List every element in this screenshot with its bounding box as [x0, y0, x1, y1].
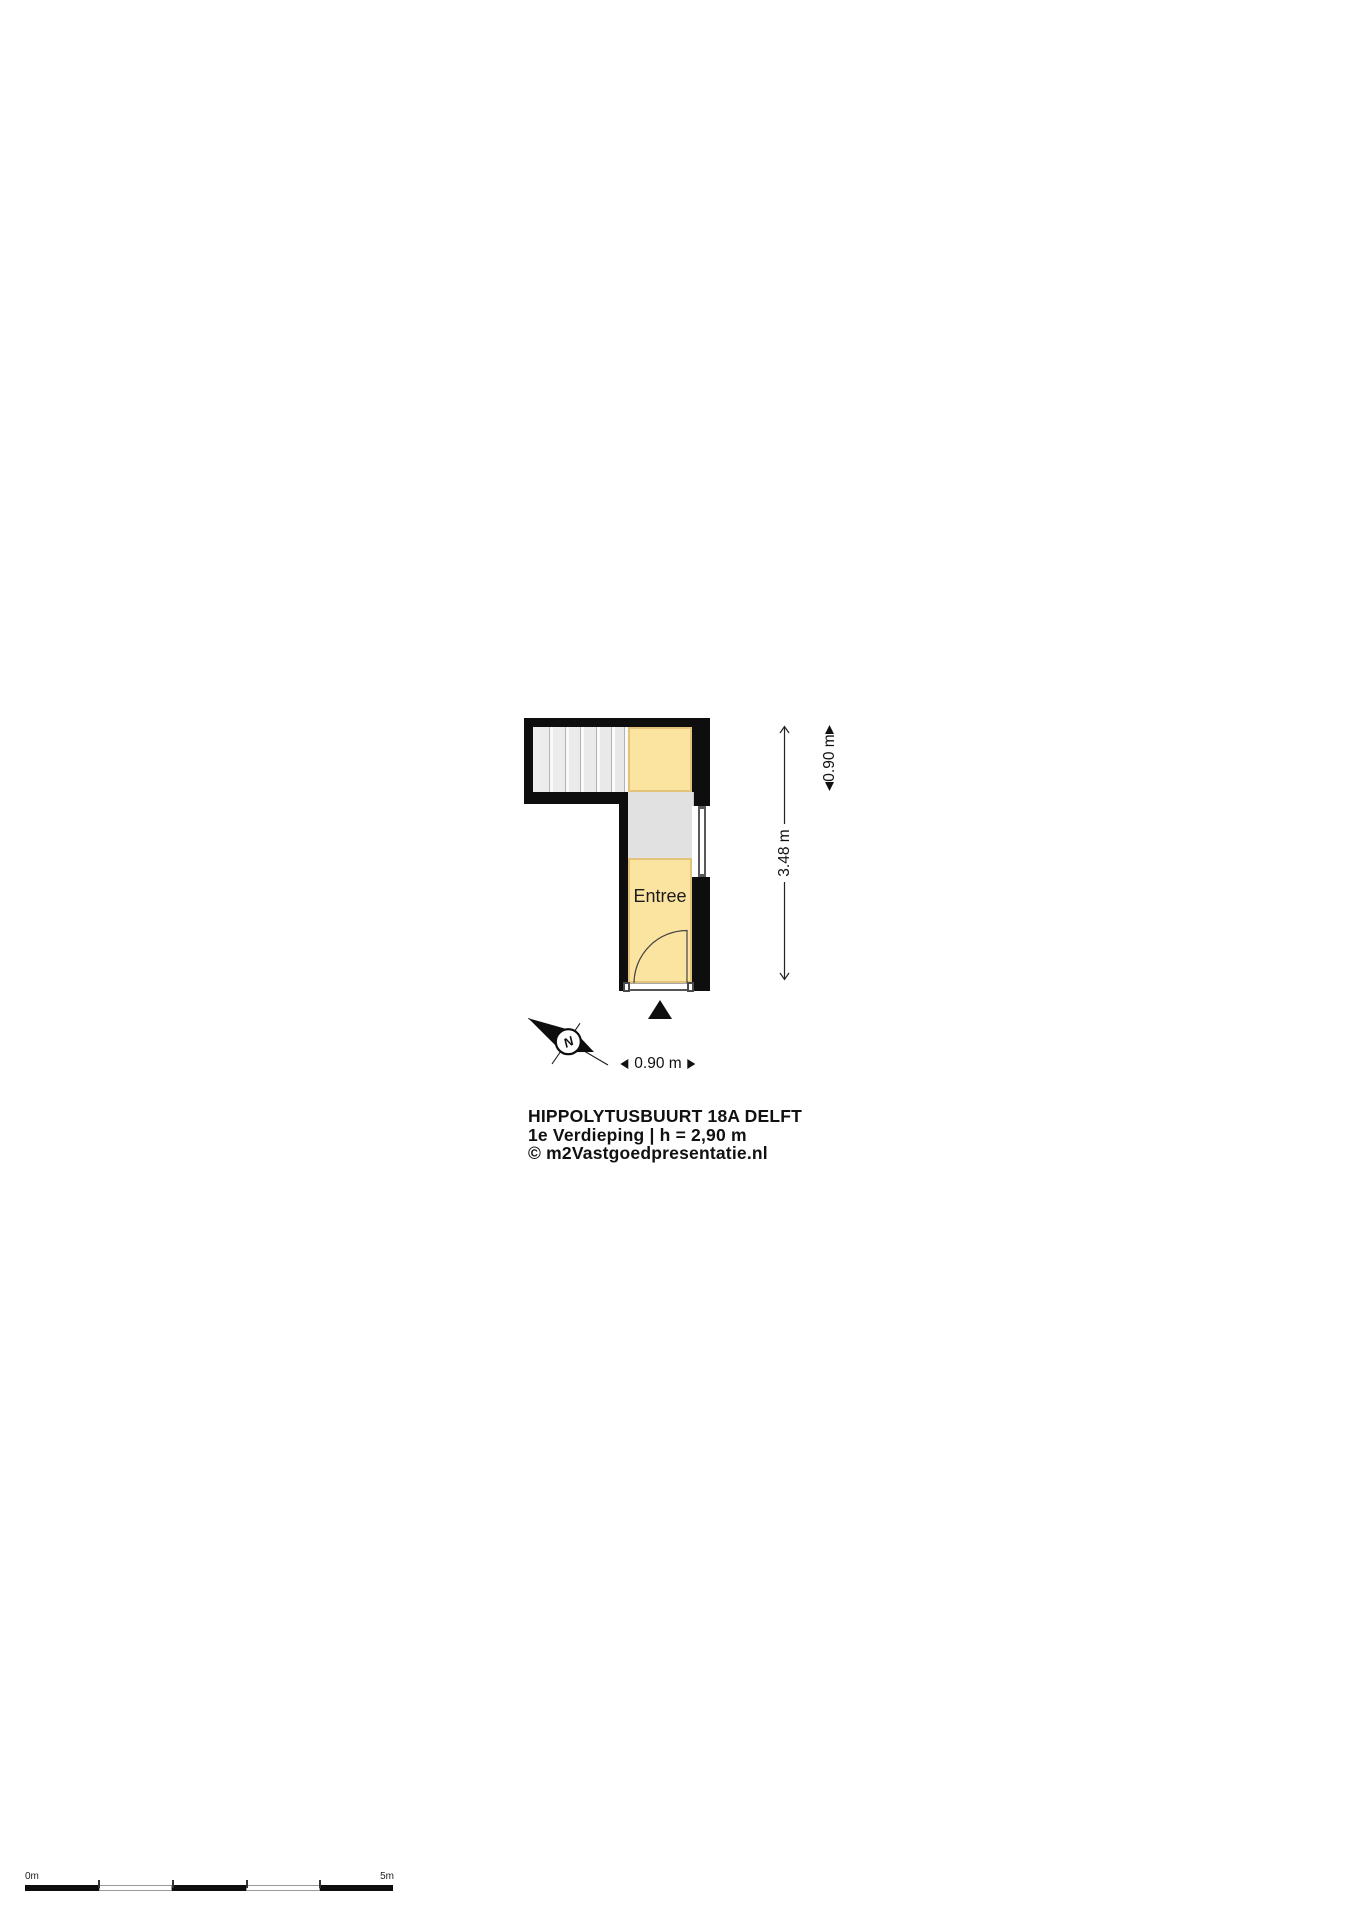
arrow-right-icon [688, 1059, 696, 1069]
stair-landing [628, 792, 694, 858]
sill-end-cap [687, 982, 694, 992]
entrance-arrow-icon [648, 1000, 672, 1019]
title-floor: 1e Verdieping | h = 2,90 m [528, 1126, 802, 1145]
scale-bar [25, 1885, 394, 1891]
scalebar-start-label: 0m [25, 1871, 39, 1882]
entry-door-sill [628, 983, 692, 991]
dimension-entry-width: 0.90 m [620, 1055, 695, 1073]
wall-right-upper [692, 718, 710, 806]
stair-tread-divider [549, 727, 553, 792]
wall-hall-left [619, 792, 628, 991]
stair-tread-divider [565, 727, 569, 792]
stair-tread-divider [611, 727, 615, 792]
title-block: HIPPOLYTUSBUURT 18A DELFT 1e Verdieping … [528, 1107, 802, 1163]
compass-north-icon: N [518, 1008, 618, 1070]
staircase [533, 727, 628, 792]
floorplan-page: Entree 3.48 m 0.90 m [0, 0, 1358, 1920]
title-address: HIPPOLYTUSBUURT 18A DELFT [528, 1107, 802, 1126]
window [692, 806, 710, 877]
window-frame-cap [700, 874, 704, 877]
scale-tick [172, 1880, 174, 1888]
room-entree-label: Entree [630, 886, 690, 907]
scale-tick [98, 1880, 100, 1888]
dimension-top-room-height: 0.90 m [823, 724, 836, 792]
arrow-down-icon [825, 782, 834, 791]
scale-segment [172, 1885, 246, 1891]
scalebar-end-label: 5m [374, 1871, 394, 1882]
scale-tick [246, 1880, 248, 1888]
scale-segment [25, 1885, 99, 1891]
dimension-total-height-label: 3.48 m [778, 829, 791, 876]
dimension-entry-width-label: 0.90 m [634, 1055, 681, 1073]
wall-stair-bottom [524, 792, 628, 804]
dimension-top-room-height-label: 0.90 m [823, 734, 836, 781]
sill-end-cap [623, 982, 630, 992]
stair-tread-divider [580, 727, 584, 792]
window-glass-icon [698, 806, 706, 877]
door-arc [628, 925, 694, 985]
dimension-total-height: 3.48 m [778, 724, 791, 982]
wall-right-lower [692, 877, 710, 991]
scale-segment [246, 1885, 320, 1891]
scale-segment [99, 1885, 173, 1891]
stair-tread-divider [596, 727, 600, 792]
title-copyright: © m2Vastgoedpresentatie.nl [528, 1144, 802, 1163]
scale-tick [319, 1880, 321, 1888]
room-top [628, 727, 692, 792]
scale-segment [320, 1885, 394, 1891]
arrow-up-icon [825, 725, 834, 734]
wall-top [524, 718, 710, 727]
window-frame-cap [700, 806, 704, 809]
arrow-left-icon [620, 1059, 628, 1069]
